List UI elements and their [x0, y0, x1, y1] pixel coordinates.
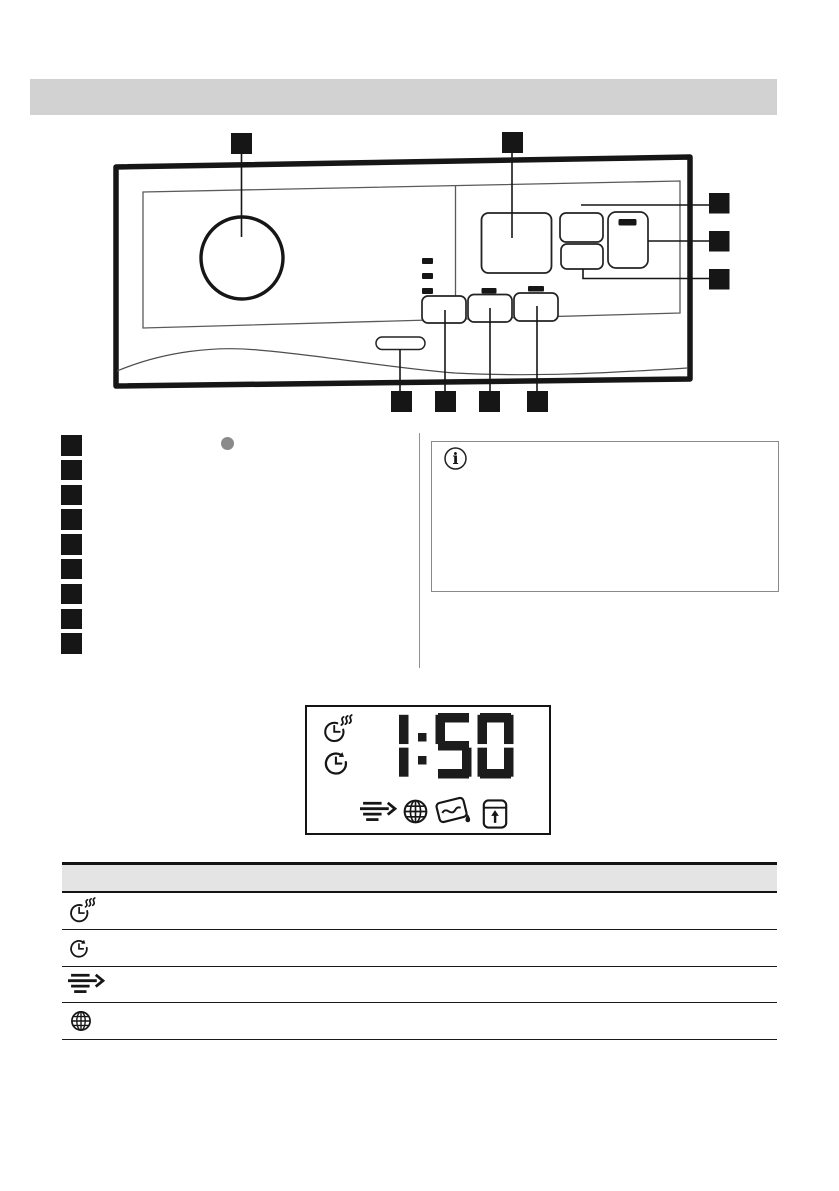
- table-row-4: [62, 1003, 777, 1040]
- callout-marker-5: [709, 269, 730, 290]
- callout-marker-7: [435, 391, 456, 412]
- legend-marker-3: [61, 485, 82, 506]
- led-dash-1: [422, 258, 433, 264]
- detergent-drawer-curve: [117, 349, 688, 375]
- large-button-dash: [619, 219, 637, 226]
- stacked-button-lower: [561, 244, 603, 269]
- legend-marker-5: [61, 534, 82, 555]
- callout-marker-3: [709, 193, 730, 214]
- legend-marker-6: [61, 559, 82, 580]
- table-row-3: [62, 967, 777, 1004]
- display-content: [307, 707, 549, 833]
- globe-icon: [68, 1008, 94, 1034]
- table-rows: [62, 893, 777, 1040]
- legend-marker-9: [61, 633, 82, 654]
- legend-marker-4: [61, 509, 82, 530]
- globe-icon: [72, 1012, 90, 1030]
- clock-arrow-icon: [326, 752, 346, 773]
- table-row-2: [62, 930, 777, 967]
- arrows-right-icon: [360, 803, 395, 820]
- display-panel: [305, 705, 551, 835]
- clock-steam-icon: [68, 897, 97, 924]
- display-time: [399, 713, 514, 779]
- display-left-icons: [325, 715, 352, 774]
- clock-arrow-icon: [71, 939, 87, 956]
- display-window: [482, 213, 552, 273]
- button-led-dash-1: [482, 288, 497, 294]
- callout-marker-2: [502, 132, 523, 153]
- clock-steam-icon: [71, 898, 96, 922]
- legend-marker-8: [61, 609, 82, 630]
- legend-marker-1: [61, 435, 82, 456]
- button-led-dash-2: [528, 286, 544, 292]
- control-panel-diagram: [0, 0, 839, 440]
- globe-icon: [405, 801, 427, 823]
- manual-page: i: [0, 0, 839, 1191]
- detergent-drop-icon: [436, 797, 470, 823]
- callout-marker-6: [391, 391, 412, 412]
- door-lock-icon: [484, 800, 506, 827]
- bullet-dot: [221, 437, 234, 450]
- pill-button: [376, 337, 425, 350]
- legend-marker-7: [61, 584, 82, 605]
- bottom-button-3: [514, 293, 558, 321]
- info-box: i: [431, 441, 779, 592]
- legend-list: [61, 435, 82, 654]
- column-divider: [419, 433, 420, 668]
- symbols-table: [62, 862, 777, 1040]
- callout-marker-9: [527, 391, 548, 412]
- led-dash-2: [422, 273, 433, 279]
- table-row-1: [62, 893, 777, 930]
- callout-marker-4: [709, 231, 730, 252]
- clock-steam-icon: [325, 715, 352, 741]
- stacked-button-upper: [560, 213, 603, 242]
- legend-marker-2: [61, 460, 82, 481]
- info-icon: i: [443, 446, 468, 471]
- led-dash-3: [422, 288, 433, 294]
- display-bottom-icons: [360, 797, 506, 827]
- svg-text:i: i: [452, 449, 458, 468]
- callout-marker-8: [479, 391, 500, 412]
- bottom-button-1: [422, 296, 466, 323]
- callout-marker-1: [231, 133, 252, 154]
- arrows-right-icon: [68, 975, 103, 992]
- arrows-right-icon: [68, 971, 105, 998]
- table-header: [62, 865, 777, 893]
- clock-arrow-icon: [68, 935, 94, 961]
